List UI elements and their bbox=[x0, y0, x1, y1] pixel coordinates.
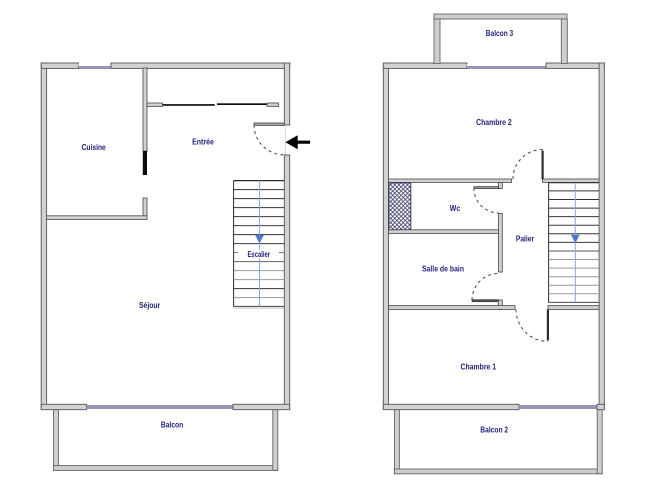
svg-text:Wc: Wc bbox=[450, 204, 461, 213]
svg-text:Salle de bain: Salle de bain bbox=[422, 265, 464, 274]
svg-text:Cuisine: Cuisine bbox=[82, 143, 107, 152]
svg-text:Escalier: Escalier bbox=[248, 250, 271, 259]
svg-text:Chambre 1: Chambre 1 bbox=[461, 363, 497, 372]
svg-text:Chambre 2: Chambre 2 bbox=[476, 118, 512, 127]
svg-text:Entrée: Entrée bbox=[192, 138, 214, 147]
svg-text:Balcon 2: Balcon 2 bbox=[480, 426, 508, 435]
svg-text:Balcon 3: Balcon 3 bbox=[486, 29, 514, 38]
svg-text:Séjour: Séjour bbox=[139, 301, 160, 310]
svg-text:Balcon: Balcon bbox=[161, 420, 184, 429]
svg-text:Palier: Palier bbox=[516, 235, 534, 244]
